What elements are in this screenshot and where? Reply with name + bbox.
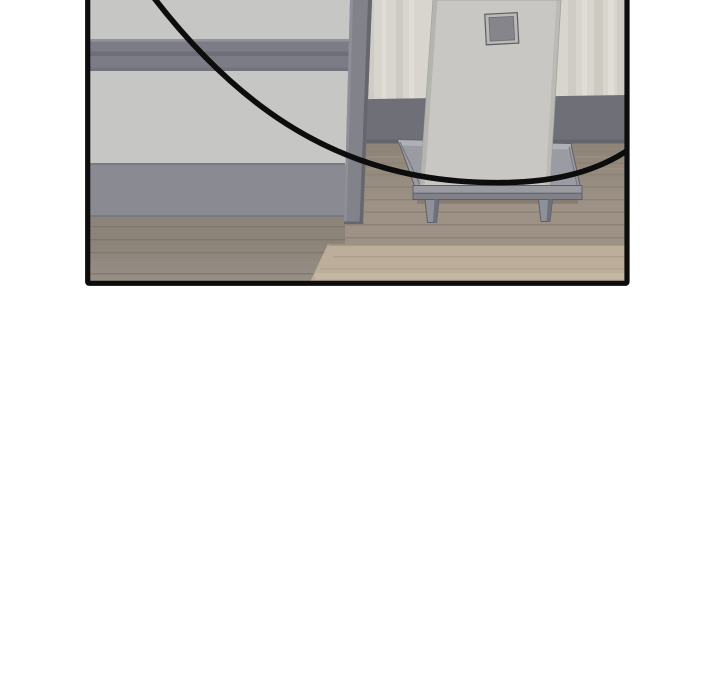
shelf-rail-stripe (88, 52, 352, 57)
baseboard-left-bottom-edge (88, 215, 345, 217)
shelf-rail-top-edge (88, 39, 352, 42)
slab-vent (485, 13, 519, 45)
panel-interior (88, 0, 634, 283)
floor-plank-line (345, 212, 626, 213)
wall-grain-streak (396, 0, 403, 100)
wall-grain-streak (409, 0, 414, 100)
frame-post-bottom-edge (344, 222, 364, 225)
wall-grain-streak (582, 0, 587, 100)
comic-panel-image (0, 0, 720, 700)
floor-plank-line (345, 224, 626, 225)
wall-grain-streak (568, 0, 576, 100)
floor-plank-line (88, 252, 345, 253)
floor-plank-line (88, 239, 345, 240)
floor-plank-line (88, 226, 345, 227)
baseboard-left-top-edge (88, 163, 345, 165)
wall-grain-streak (608, 0, 614, 100)
floor-plank-line (88, 273, 345, 274)
floor-plank-line (88, 262, 345, 263)
wall-grain-streak (594, 0, 603, 100)
stand-floor-shadow (417, 200, 578, 204)
wall-grain-streak (382, 0, 386, 100)
stand-base-front (413, 193, 582, 199)
floor-plank-line (345, 237, 626, 238)
floor-plank-line (333, 256, 626, 257)
floor-plank-highlight (315, 273, 626, 280)
stand-base-top (413, 186, 582, 194)
floor-light-band-edge (328, 244, 626, 246)
floor-plank-line (320, 269, 626, 270)
baseboard-left (88, 163, 345, 217)
wall-grain-streak (617, 0, 624, 100)
slab-vent-square (489, 16, 515, 41)
panel-canvas (0, 0, 720, 700)
